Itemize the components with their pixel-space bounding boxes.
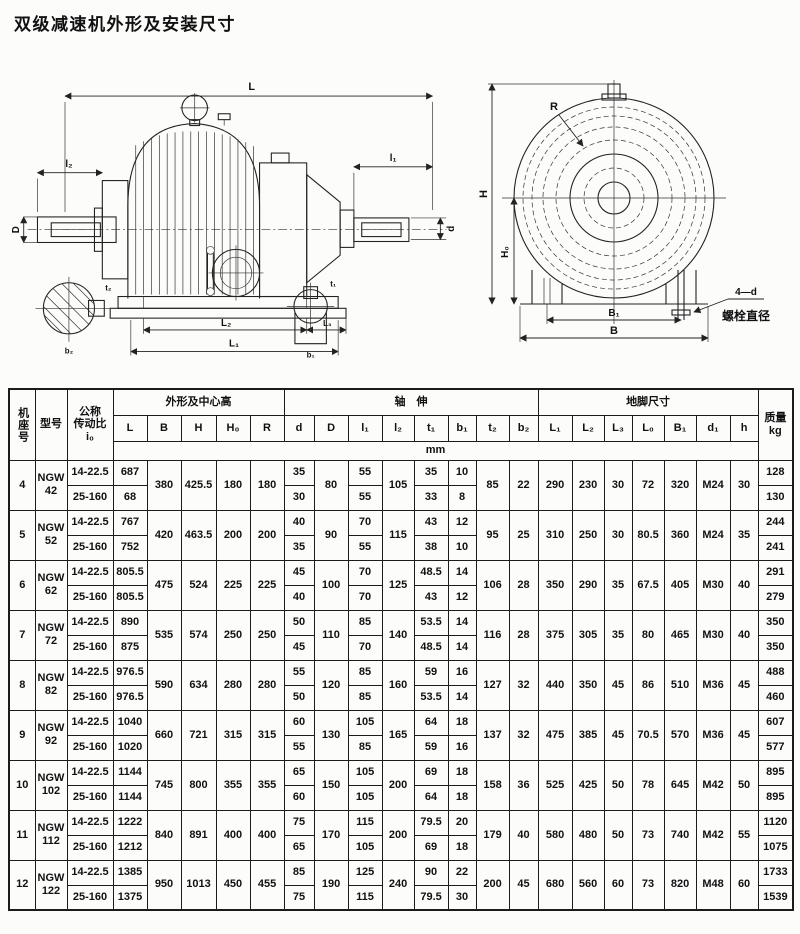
cell-l1: 105 bbox=[348, 785, 382, 810]
cell-t1: 59 bbox=[414, 735, 448, 760]
cell-b2: 36 bbox=[509, 760, 538, 810]
cell-H0: 315 bbox=[216, 710, 250, 760]
cell-ratio: 14-22.5 bbox=[67, 510, 113, 535]
cell-B1: 820 bbox=[664, 860, 696, 910]
cell-b2: 45 bbox=[509, 860, 538, 910]
cell-l1: 115 bbox=[348, 810, 382, 835]
cell-L1: 290 bbox=[538, 460, 572, 510]
header-col-B: B bbox=[147, 415, 181, 441]
cell-b1: 16 bbox=[448, 735, 476, 760]
cell-L: 1144 bbox=[113, 785, 147, 810]
cell-frame-no: 8 bbox=[9, 660, 35, 710]
cell-t1: 79.5 bbox=[414, 885, 448, 910]
cell-frame-no: 10 bbox=[9, 760, 35, 810]
cell-B1: 360 bbox=[664, 510, 696, 560]
cell-H: 891 bbox=[181, 810, 216, 860]
cell-h: 45 bbox=[730, 710, 758, 760]
cell-mass: 291 bbox=[758, 560, 793, 585]
cell-t1: 59 bbox=[414, 660, 448, 685]
table-row: 8NGW 8214-22.5976.5590634280280551208516… bbox=[9, 660, 793, 685]
cell-B: 840 bbox=[147, 810, 181, 860]
cell-L3: 50 bbox=[604, 760, 632, 810]
cell-ratio: 14-22.5 bbox=[67, 660, 113, 685]
cell-d: 55 bbox=[284, 735, 314, 760]
cell-d: 55 bbox=[284, 660, 314, 685]
header-col-L: L bbox=[113, 415, 147, 441]
cell-d1: M48 bbox=[696, 860, 730, 910]
cell-d1: M36 bbox=[696, 710, 730, 760]
cell-model: NGW 82 bbox=[35, 660, 67, 710]
cell-model: NGW 102 bbox=[35, 760, 67, 810]
cell-l1: 70 bbox=[348, 635, 382, 660]
dim-label-L3: L₃ bbox=[323, 319, 332, 328]
cell-B: 745 bbox=[147, 760, 181, 810]
cell-mass: 241 bbox=[758, 535, 793, 560]
cell-mass: 128 bbox=[758, 460, 793, 485]
cell-L: 752 bbox=[113, 535, 147, 560]
header-col-D: D bbox=[314, 415, 348, 441]
cell-h: 50 bbox=[730, 760, 758, 810]
cell-l2: 165 bbox=[382, 710, 414, 760]
cell-H0: 280 bbox=[216, 660, 250, 710]
cell-l1: 70 bbox=[348, 585, 382, 610]
cell-d: 65 bbox=[284, 760, 314, 785]
cell-b1: 30 bbox=[448, 885, 476, 910]
cell-t2: 106 bbox=[476, 560, 509, 610]
header-col-L0: L₀ bbox=[632, 415, 664, 441]
cell-L: 1020 bbox=[113, 735, 147, 760]
cell-D: 150 bbox=[314, 760, 348, 810]
cell-b1: 18 bbox=[448, 835, 476, 860]
cell-L2: 385 bbox=[572, 710, 604, 760]
header-col-L2: L₂ bbox=[572, 415, 604, 441]
header-group-outline: 外形及中心高 bbox=[113, 389, 284, 415]
cell-t1: 48.5 bbox=[414, 635, 448, 660]
cell-t2: 179 bbox=[476, 810, 509, 860]
dim-label-H: H bbox=[478, 190, 490, 198]
cell-mass: 488 bbox=[758, 660, 793, 685]
front-view-drawing: H H₀ R B₁ B 4—d 螺栓直径 bbox=[462, 72, 792, 350]
cell-D: 120 bbox=[314, 660, 348, 710]
cell-B1: 645 bbox=[664, 760, 696, 810]
table-row: 12NGW 12214-22.5138595010134504558519012… bbox=[9, 860, 793, 885]
dim-H0: H₀ bbox=[500, 198, 514, 304]
dim-label-L2: L₂ bbox=[221, 318, 231, 329]
cell-h: 40 bbox=[730, 560, 758, 610]
cell-l1: 85 bbox=[348, 685, 382, 710]
cell-b2: 25 bbox=[509, 510, 538, 560]
dim-l1: l₁ bbox=[354, 153, 433, 214]
cell-b1: 12 bbox=[448, 585, 476, 610]
cell-l1: 105 bbox=[348, 710, 382, 735]
cell-t1: 33 bbox=[414, 485, 448, 510]
drawings-area: L bbox=[0, 56, 800, 376]
cell-R: 355 bbox=[250, 760, 284, 810]
cell-b1: 10 bbox=[448, 535, 476, 560]
detail-label-b1: b₁ bbox=[307, 350, 315, 359]
cell-L: 976.5 bbox=[113, 685, 147, 710]
cell-H0: 450 bbox=[216, 860, 250, 910]
cell-ratio: 14-22.5 bbox=[67, 860, 113, 885]
cell-ratio: 14-22.5 bbox=[67, 760, 113, 785]
cell-L0: 80 bbox=[632, 610, 664, 660]
page-title: 双级减速机外形及安装尺寸 bbox=[14, 10, 236, 35]
output-shaft bbox=[354, 218, 409, 242]
cell-b1: 18 bbox=[448, 710, 476, 735]
cell-B1: 510 bbox=[664, 660, 696, 710]
header-col-L3: L₃ bbox=[604, 415, 632, 441]
cell-d: 50 bbox=[284, 685, 314, 710]
cell-H: 425.5 bbox=[181, 460, 216, 510]
header-ratio: 公称 传动比 i₀ bbox=[67, 389, 113, 460]
cell-H: 574 bbox=[181, 610, 216, 660]
cell-ratio: 25-160 bbox=[67, 535, 113, 560]
cell-R: 400 bbox=[250, 810, 284, 860]
header-col-H0: H₀ bbox=[216, 415, 250, 441]
cell-L3: 30 bbox=[604, 460, 632, 510]
cell-l1: 55 bbox=[348, 535, 382, 560]
header-model: 型号 bbox=[35, 389, 67, 460]
cell-B: 660 bbox=[147, 710, 181, 760]
cell-ratio: 14-22.5 bbox=[67, 710, 113, 735]
header-col-t1: t₁ bbox=[414, 415, 448, 441]
header-col-l1: l₁ bbox=[348, 415, 382, 441]
cell-L1: 580 bbox=[538, 810, 572, 860]
cell-d: 75 bbox=[284, 885, 314, 910]
cell-D: 130 bbox=[314, 710, 348, 760]
cell-b1: 14 bbox=[448, 685, 476, 710]
cell-ratio: 14-22.5 bbox=[67, 810, 113, 835]
header-col-d: d bbox=[284, 415, 314, 441]
cell-t1: 64 bbox=[414, 785, 448, 810]
cell-b2: 22 bbox=[509, 460, 538, 510]
dim-d: d bbox=[411, 218, 457, 240]
cell-frame-no: 12 bbox=[9, 860, 35, 910]
cell-d: 45 bbox=[284, 635, 314, 660]
cell-l1: 115 bbox=[348, 885, 382, 910]
cell-H: 1013 bbox=[181, 860, 216, 910]
cell-L2: 350 bbox=[572, 660, 604, 710]
cell-b1: 18 bbox=[448, 785, 476, 810]
cell-ratio: 25-160 bbox=[67, 885, 113, 910]
cell-model: NGW 72 bbox=[35, 610, 67, 660]
dim-label-l2: l₂ bbox=[65, 159, 72, 170]
cell-d: 85 bbox=[284, 860, 314, 885]
cell-B1: 320 bbox=[664, 460, 696, 510]
dimension-table: 机座号 型号 公称 传动比 i₀ 外形及中心高 轴 伸 地脚尺寸 质量 kg L… bbox=[8, 388, 794, 911]
cell-t1: 48.5 bbox=[414, 560, 448, 585]
cell-d1: M42 bbox=[696, 760, 730, 810]
cell-h: 60 bbox=[730, 860, 758, 910]
detail-label-t2: t₂ bbox=[105, 284, 112, 293]
cell-l1: 85 bbox=[348, 735, 382, 760]
cell-d: 40 bbox=[284, 585, 314, 610]
cell-L3: 45 bbox=[604, 660, 632, 710]
second-stage-housing bbox=[260, 153, 354, 296]
breather-plug bbox=[218, 114, 230, 126]
cell-L1: 310 bbox=[538, 510, 572, 560]
cell-b1: 14 bbox=[448, 635, 476, 660]
cell-mass: 607 bbox=[758, 710, 793, 735]
cell-mass: 130 bbox=[758, 485, 793, 510]
cell-R: 315 bbox=[250, 710, 284, 760]
cell-l2: 115 bbox=[382, 510, 414, 560]
cell-H0: 355 bbox=[216, 760, 250, 810]
cell-R: 250 bbox=[250, 610, 284, 660]
cell-L: 687 bbox=[113, 460, 147, 485]
cell-d: 75 bbox=[284, 810, 314, 835]
cell-model: NGW 122 bbox=[35, 860, 67, 910]
cell-mass: 1075 bbox=[758, 835, 793, 860]
cell-L0: 72 bbox=[632, 460, 664, 510]
cell-L3: 35 bbox=[604, 610, 632, 660]
cell-b1: 8 bbox=[448, 485, 476, 510]
cell-mass: 1539 bbox=[758, 885, 793, 910]
cell-L: 805.5 bbox=[113, 585, 147, 610]
cell-ratio: 25-160 bbox=[67, 785, 113, 810]
cell-d: 65 bbox=[284, 835, 314, 860]
cell-d: 40 bbox=[284, 510, 314, 535]
cell-l1: 55 bbox=[348, 460, 382, 485]
cell-L2: 250 bbox=[572, 510, 604, 560]
cell-L1: 440 bbox=[538, 660, 572, 710]
cell-L3: 30 bbox=[604, 510, 632, 560]
cell-frame-no: 6 bbox=[9, 560, 35, 610]
cell-L1: 375 bbox=[538, 610, 572, 660]
cell-L1: 475 bbox=[538, 710, 572, 760]
cell-B1: 405 bbox=[664, 560, 696, 610]
cell-B: 420 bbox=[147, 510, 181, 560]
cell-ratio: 14-22.5 bbox=[67, 460, 113, 485]
cell-L: 805.5 bbox=[113, 560, 147, 585]
cell-t2: 158 bbox=[476, 760, 509, 810]
cell-frame-no: 11 bbox=[9, 810, 35, 860]
cell-L: 1144 bbox=[113, 760, 147, 785]
cell-d1: M36 bbox=[696, 660, 730, 710]
dim-label-D: D bbox=[11, 226, 22, 233]
cell-R: 180 bbox=[250, 460, 284, 510]
cell-B: 950 bbox=[147, 860, 181, 910]
cell-R: 455 bbox=[250, 860, 284, 910]
header-col-L1: L₁ bbox=[538, 415, 572, 441]
cell-mass: 1120 bbox=[758, 810, 793, 835]
table-row: 7NGW 7214-22.589053557425025050110851405… bbox=[9, 610, 793, 635]
cell-L: 1375 bbox=[113, 885, 147, 910]
cell-L0: 86 bbox=[632, 660, 664, 710]
cell-frame-no: 5 bbox=[9, 510, 35, 560]
cell-mass: 895 bbox=[758, 760, 793, 785]
cell-l2: 140 bbox=[382, 610, 414, 660]
header-group-shaft: 轴 伸 bbox=[284, 389, 538, 415]
cell-t1: 35 bbox=[414, 460, 448, 485]
cell-L3: 60 bbox=[604, 860, 632, 910]
cell-b1: 12 bbox=[448, 510, 476, 535]
cell-model: NGW 92 bbox=[35, 710, 67, 760]
cell-L: 767 bbox=[113, 510, 147, 535]
cell-ratio: 25-160 bbox=[67, 635, 113, 660]
cell-l2: 200 bbox=[382, 760, 414, 810]
cell-t2: 95 bbox=[476, 510, 509, 560]
cell-L0: 70.5 bbox=[632, 710, 664, 760]
dim-L2-foot: L₂ bbox=[144, 318, 307, 334]
cell-B1: 570 bbox=[664, 710, 696, 760]
cell-ratio: 14-22.5 bbox=[67, 610, 113, 635]
cell-H: 721 bbox=[181, 710, 216, 760]
header-col-b1: b₁ bbox=[448, 415, 476, 441]
dim-label-H0: H₀ bbox=[500, 246, 511, 258]
cell-t2: 116 bbox=[476, 610, 509, 660]
dim-R: R bbox=[550, 101, 583, 146]
cell-h: 45 bbox=[730, 660, 758, 710]
cell-mass: 577 bbox=[758, 735, 793, 760]
cell-t2: 85 bbox=[476, 460, 509, 510]
cell-L3: 50 bbox=[604, 810, 632, 860]
cell-b1: 16 bbox=[448, 660, 476, 685]
cell-L2: 560 bbox=[572, 860, 604, 910]
cell-L: 68 bbox=[113, 485, 147, 510]
cell-b2: 32 bbox=[509, 710, 538, 760]
cell-B: 475 bbox=[147, 560, 181, 610]
dim-l2: l₂ bbox=[37, 159, 102, 212]
table-row: 6NGW 6214-22.5805.5475524225225451007012… bbox=[9, 560, 793, 585]
cell-l1: 85 bbox=[348, 660, 382, 685]
cell-l1: 125 bbox=[348, 860, 382, 885]
cell-ratio: 25-160 bbox=[67, 685, 113, 710]
cell-L2: 230 bbox=[572, 460, 604, 510]
cell-mass: 350 bbox=[758, 635, 793, 660]
cell-frame-no: 4 bbox=[9, 460, 35, 510]
dim-label-L: L bbox=[248, 81, 255, 93]
cell-D: 80 bbox=[314, 460, 348, 510]
housing-circles bbox=[502, 80, 726, 324]
cell-L1: 350 bbox=[538, 560, 572, 610]
cell-t1: 79.5 bbox=[414, 810, 448, 835]
cell-ratio: 25-160 bbox=[67, 735, 113, 760]
cell-L0: 78 bbox=[632, 760, 664, 810]
cell-d: 35 bbox=[284, 535, 314, 560]
header-group-foot: 地脚尺寸 bbox=[538, 389, 758, 415]
cell-R: 225 bbox=[250, 560, 284, 610]
cell-h: 30 bbox=[730, 460, 758, 510]
table-row: 4NGW 4214-22.5687380425.5180180358055105… bbox=[9, 460, 793, 485]
cell-L2: 290 bbox=[572, 560, 604, 610]
cell-t2: 200 bbox=[476, 860, 509, 910]
cell-l2: 160 bbox=[382, 660, 414, 710]
header-mass: 质量 kg bbox=[758, 389, 793, 460]
cell-t1: 69 bbox=[414, 835, 448, 860]
dim-label-B: B bbox=[610, 325, 618, 337]
detail-label-b2: b₂ bbox=[65, 347, 74, 356]
cell-H0: 225 bbox=[216, 560, 250, 610]
cell-L: 1385 bbox=[113, 860, 147, 885]
cell-mass: 350 bbox=[758, 610, 793, 635]
bolt-callout: 4—d 螺栓直径 bbox=[694, 287, 770, 323]
cell-frame-no: 9 bbox=[9, 710, 35, 760]
cell-d: 35 bbox=[284, 460, 314, 485]
oil-gauge bbox=[206, 246, 214, 295]
cell-d: 45 bbox=[284, 560, 314, 585]
cell-L2: 425 bbox=[572, 760, 604, 810]
keyway-detail-left: t₂ b₂ bbox=[34, 271, 113, 356]
cell-R: 280 bbox=[250, 660, 284, 710]
cell-t1: 43 bbox=[414, 510, 448, 535]
cell-L: 976.5 bbox=[113, 660, 147, 685]
cell-L2: 305 bbox=[572, 610, 604, 660]
cell-model: NGW 52 bbox=[35, 510, 67, 560]
cell-b1: 14 bbox=[448, 560, 476, 585]
dim-label-l1: l₁ bbox=[390, 153, 397, 164]
cell-mass: 460 bbox=[758, 685, 793, 710]
cell-L: 890 bbox=[113, 610, 147, 635]
cell-l2: 105 bbox=[382, 460, 414, 510]
cell-l1: 105 bbox=[348, 835, 382, 860]
cell-frame-no: 7 bbox=[9, 610, 35, 660]
cell-model: NGW 62 bbox=[35, 560, 67, 610]
cell-D: 90 bbox=[314, 510, 348, 560]
header-col-b2: b₂ bbox=[509, 415, 538, 441]
cell-L0: 73 bbox=[632, 860, 664, 910]
cell-L0: 80.5 bbox=[632, 510, 664, 560]
cell-mass: 895 bbox=[758, 785, 793, 810]
bolt-count-label: 4—d bbox=[735, 287, 757, 298]
cell-model: NGW 112 bbox=[35, 810, 67, 860]
cell-B: 590 bbox=[147, 660, 181, 710]
cell-B1: 740 bbox=[664, 810, 696, 860]
cell-l1: 105 bbox=[348, 760, 382, 785]
cell-B1: 465 bbox=[664, 610, 696, 660]
cell-t2: 137 bbox=[476, 710, 509, 760]
housing-body bbox=[128, 124, 260, 299]
cell-L0: 73 bbox=[632, 810, 664, 860]
cell-h: 40 bbox=[730, 610, 758, 660]
header-frame-no: 机座号 bbox=[9, 389, 35, 460]
detail-label-t1: t₁ bbox=[330, 280, 336, 289]
cell-D: 110 bbox=[314, 610, 348, 660]
dim-label-B1: B₁ bbox=[608, 308, 619, 319]
cell-t1: 53.5 bbox=[414, 685, 448, 710]
cell-L: 1222 bbox=[113, 810, 147, 835]
cell-l1: 70 bbox=[348, 510, 382, 535]
cell-L: 1212 bbox=[113, 835, 147, 860]
cell-l2: 200 bbox=[382, 810, 414, 860]
cell-H0: 180 bbox=[216, 460, 250, 510]
cell-d: 60 bbox=[284, 710, 314, 735]
cell-d: 50 bbox=[284, 610, 314, 635]
cell-D: 100 bbox=[314, 560, 348, 610]
cell-L: 1040 bbox=[113, 710, 147, 735]
table-row: 5NGW 5214-22.5767420463.5200200409070115… bbox=[9, 510, 793, 535]
cell-l2: 240 bbox=[382, 860, 414, 910]
table-row: 10NGW 10214-22.5114474580035535565150105… bbox=[9, 760, 793, 785]
cell-d1: M24 bbox=[696, 510, 730, 560]
cell-H: 800 bbox=[181, 760, 216, 810]
cell-L1: 680 bbox=[538, 860, 572, 910]
cell-l1: 85 bbox=[348, 610, 382, 635]
header-col-H: H bbox=[181, 415, 216, 441]
cell-B: 380 bbox=[147, 460, 181, 510]
side-view-drawing: L bbox=[8, 60, 460, 366]
header-col-B1: B₁ bbox=[664, 415, 696, 441]
cell-t1: 90 bbox=[414, 860, 448, 885]
cell-B: 535 bbox=[147, 610, 181, 660]
cell-b1: 20 bbox=[448, 810, 476, 835]
cell-b2: 28 bbox=[509, 610, 538, 660]
cell-H: 463.5 bbox=[181, 510, 216, 560]
cell-t1: 64 bbox=[414, 710, 448, 735]
cell-mass: 1733 bbox=[758, 860, 793, 885]
cell-l1: 55 bbox=[348, 485, 382, 510]
dim-label-L1: L₁ bbox=[229, 339, 239, 350]
